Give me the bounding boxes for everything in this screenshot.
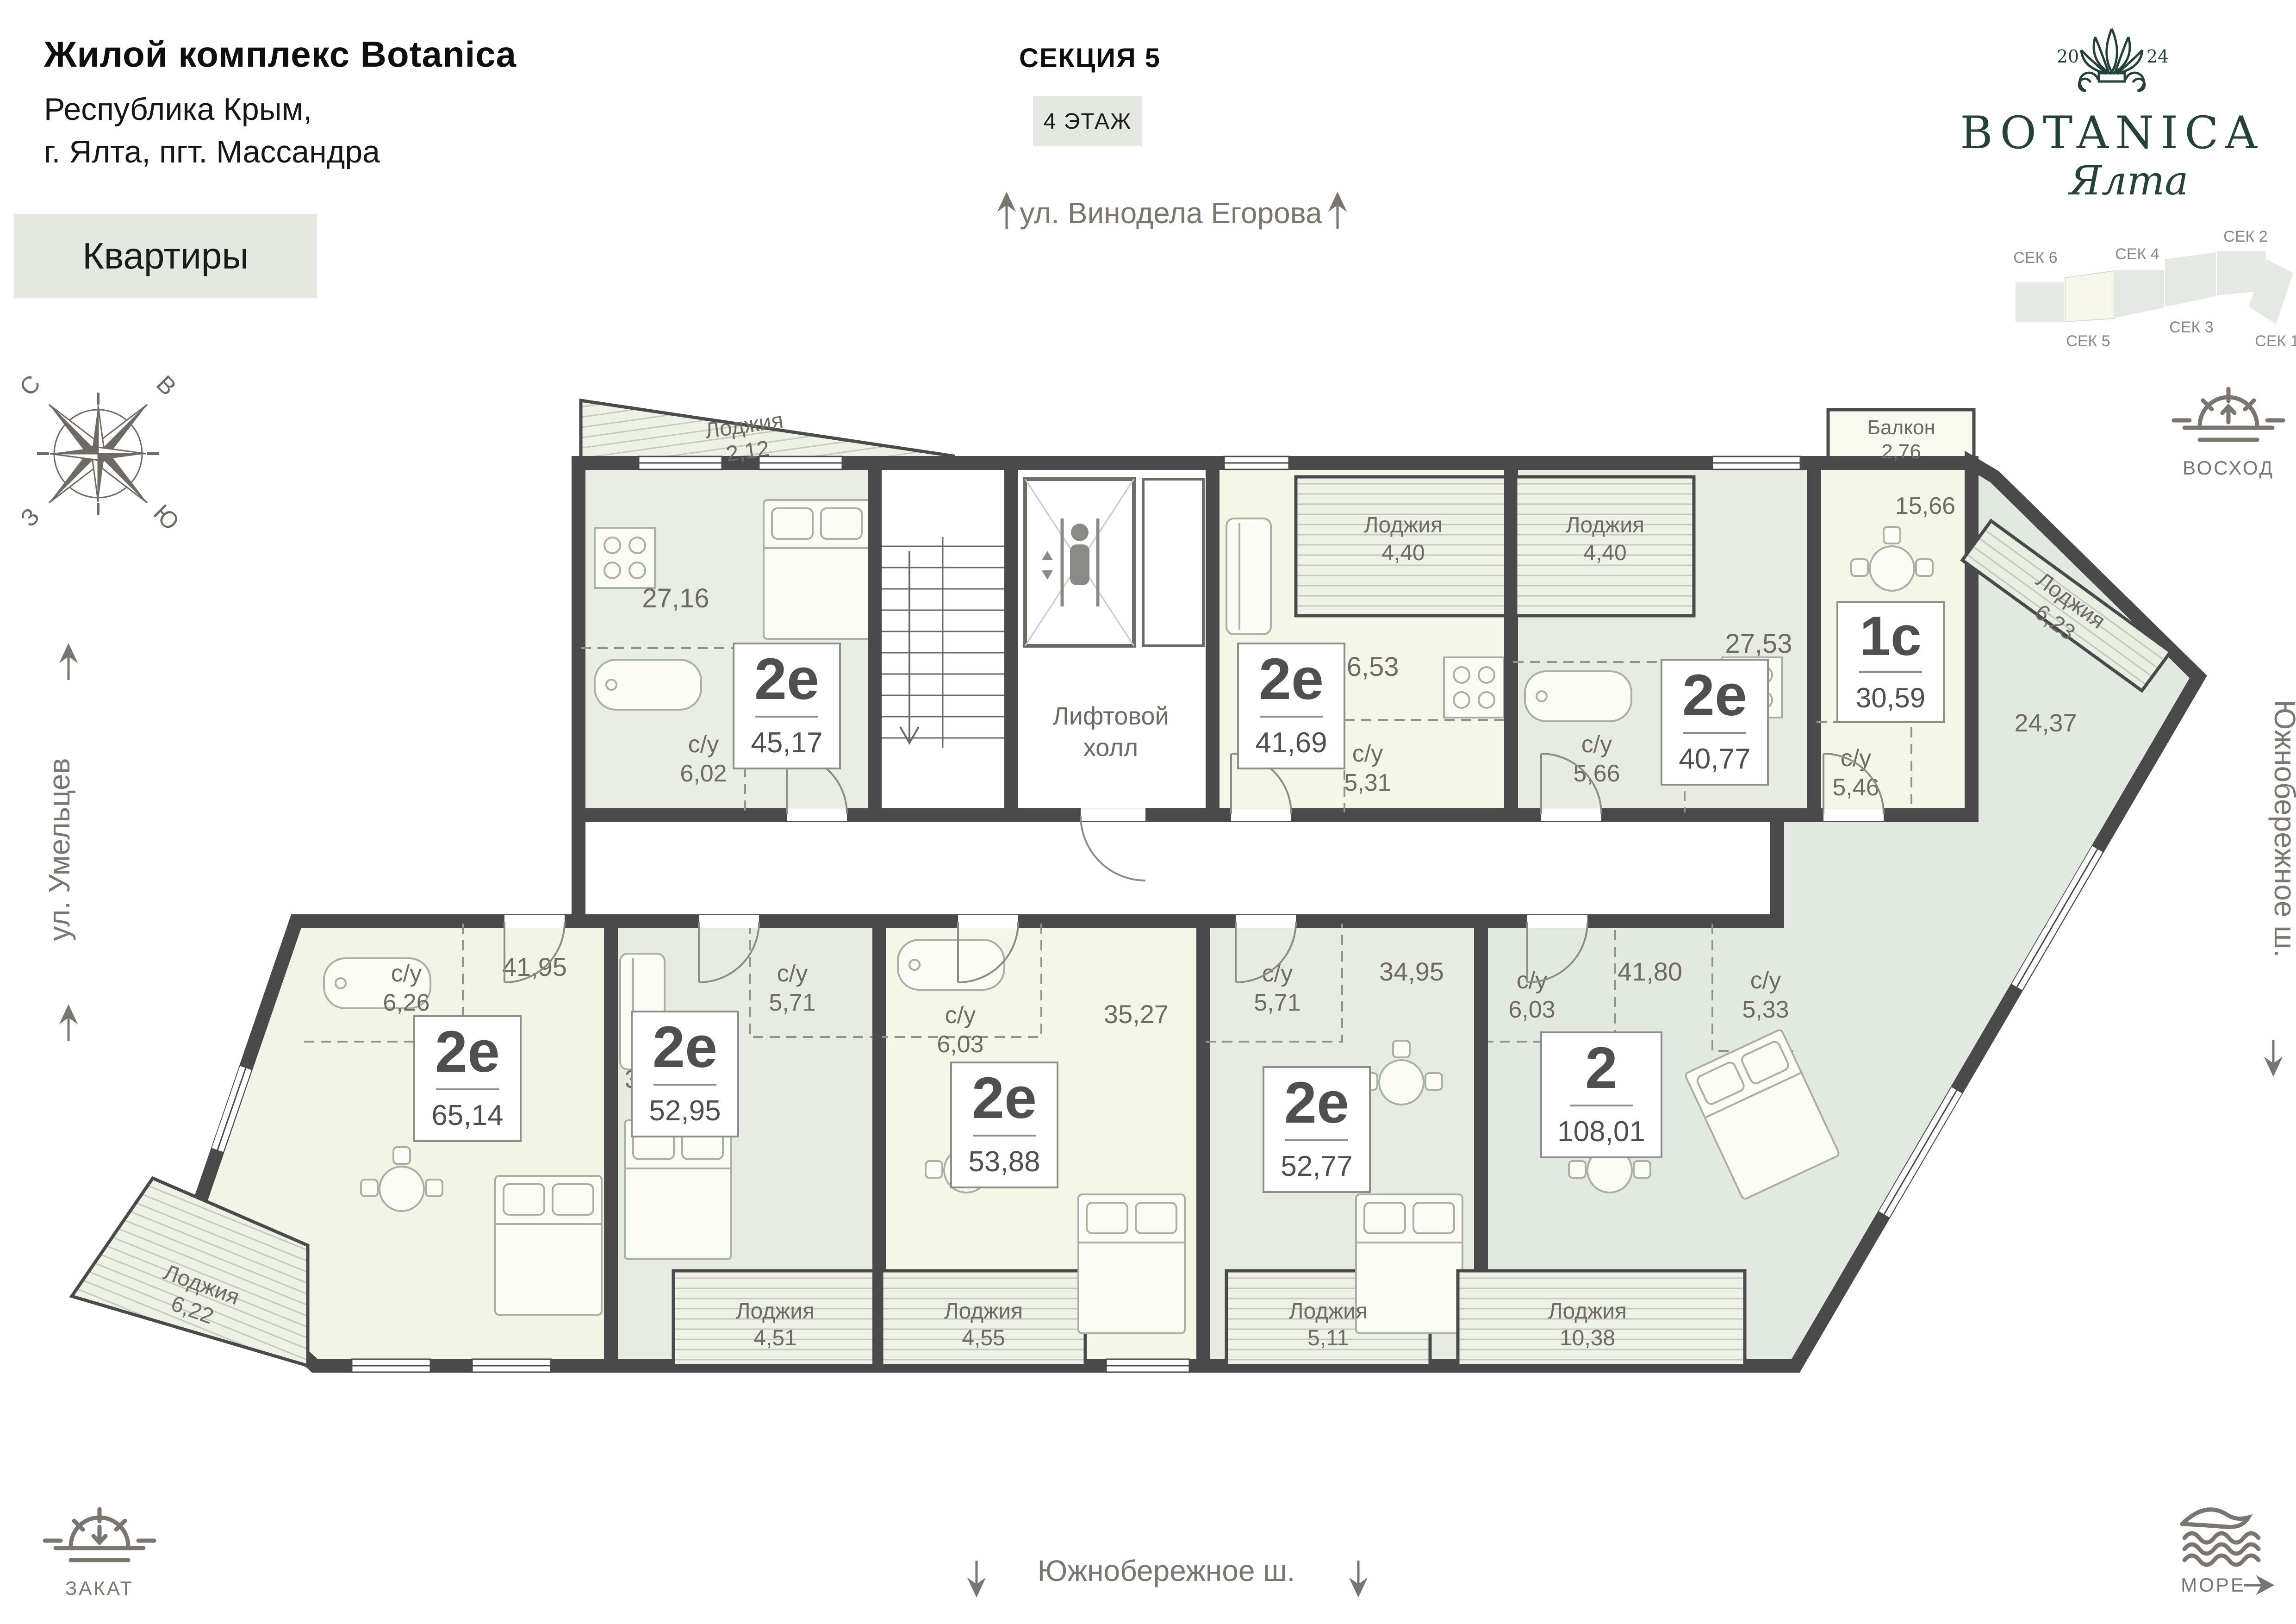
stove-icon: [595, 528, 655, 588]
svg-text:2е: 2е: [1682, 662, 1747, 728]
wc-label: с/у: [391, 960, 422, 987]
sea-corner: МОРЕ: [2181, 1510, 2271, 1596]
compass-south: Ю: [148, 500, 184, 536]
svg-text:2е: 2е: [653, 1014, 717, 1080]
room-area: 41,80: [1618, 957, 1682, 986]
bed-icon: [495, 1176, 602, 1315]
botanica-ornament-icon: [2079, 29, 2145, 91]
bathtub-icon: [898, 940, 1004, 990]
arrow-up-icon: [1331, 194, 1344, 229]
badge-2e-52-95: 2е 52,95: [632, 1012, 738, 1137]
section-map-label: СЕК 2: [2223, 228, 2267, 245]
svg-text:2е: 2е: [1259, 646, 1324, 712]
room-area: 15,66: [1895, 493, 1955, 519]
badge-1s-30-59: 1с 30,59: [1837, 602, 1944, 722]
wc-label: с/у: [777, 960, 808, 987]
logo-brand: BOTANICA: [1960, 107, 2264, 159]
loggia-label: Лоджия: [1548, 1299, 1627, 1324]
room-area: 41,95: [502, 952, 567, 981]
svg-text:1с: 1с: [1860, 605, 1921, 667]
compass-west: З: [15, 503, 44, 532]
wc-area: 6,03: [937, 1031, 983, 1058]
room-area: 34,95: [1379, 957, 1444, 986]
loggia-label: Лоджия: [736, 1299, 815, 1324]
compass-east: В: [151, 370, 181, 401]
loggia-label: Лоджия: [1566, 513, 1644, 537]
sea-label: МОРЕ: [2181, 1574, 2246, 1596]
street-bottom: Южнобережное ш.: [1038, 1554, 1295, 1587]
wc2-label: с/у: [1750, 967, 1781, 994]
wc-area: 5,66: [1573, 760, 1620, 787]
wc-area: 6,03: [1508, 996, 1555, 1023]
section-mini-map: СЕК 6 СЕК 4 СЕК 2 СЕК 5 СЕК 3 СЕК 1: [2013, 228, 2296, 350]
logo-city: Ялта: [2067, 158, 2188, 204]
sunset-label: ЗАКАТ: [65, 1577, 134, 1599]
svg-text:52,77: 52,77: [1281, 1150, 1352, 1182]
svg-text:2е: 2е: [1284, 1070, 1349, 1135]
loggia-label: Лоджия: [944, 1299, 1023, 1324]
street-right: Южнобережное ш.: [2268, 700, 2296, 958]
corridor: [579, 815, 1777, 921]
bed-icon: [764, 500, 870, 639]
sofa-icon: [1226, 518, 1271, 634]
wc-label: с/у: [1352, 740, 1383, 767]
balcony-label: Балкон: [1867, 416, 1935, 439]
balcony-area: 2,76: [1881, 440, 1921, 463]
logo-year-right: 24: [2147, 46, 2169, 67]
loggia-area: 4,55: [962, 1326, 1005, 1350]
arrow-up-icon: [62, 1007, 75, 1041]
section-block-5-active[interactable]: [2065, 271, 2114, 322]
badge-2e-65-14: 2е 65,14: [414, 1016, 521, 1141]
section-block-4[interactable]: [2115, 270, 2164, 318]
badge-2-108-01: 2 108,01: [1541, 1032, 1661, 1157]
room-area: 27,53: [1725, 629, 1792, 659]
sunset-icon: [45, 1509, 154, 1560]
svg-text:52,95: 52,95: [649, 1095, 721, 1127]
svg-text:53,88: 53,88: [968, 1146, 1040, 1178]
floorplan: Лоджия 2,12 27,16 с/у 6,02: [72, 400, 2198, 1372]
loggia-area: 4,51: [753, 1326, 796, 1350]
floorplan-svg: Лоджия 2,12 27,16 с/у 6,02: [0, 0, 2296, 1624]
svg-text:41,69: 41,69: [1255, 727, 1327, 759]
lift-hall-label-2: холл: [1083, 734, 1138, 762]
room-area: 35,27: [1104, 999, 1169, 1029]
svg-text:65,14: 65,14: [431, 1099, 503, 1131]
arrow-up-icon: [1000, 194, 1013, 229]
wc-area: 5,71: [1254, 989, 1300, 1016]
wc-area: 5,31: [1344, 769, 1391, 796]
floorplan-page: Жилой комплекс Botanica Республика Крым,…: [0, 0, 2296, 1624]
arrow-up-icon: [62, 646, 75, 680]
svg-text:40,77: 40,77: [1679, 743, 1750, 775]
apartment-2e-52-95[interactable]: 34,95 с/у 5,71 Лоджия 4,51: [611, 921, 879, 1366]
bathtub-icon: [595, 660, 701, 710]
bed-icon: [1356, 1194, 1462, 1333]
lift-hall: Лифтовой холл: [1011, 463, 1213, 815]
wc-label: с/у: [688, 731, 719, 758]
bed-icon: [625, 1120, 731, 1259]
badge-2e-41-69: 2е 41,69: [1238, 643, 1344, 768]
lift-hall-label-1: Лифтовой: [1052, 702, 1169, 730]
sea-arrow-icon: [2244, 1579, 2271, 1592]
sunrise-icon: [2174, 389, 2283, 440]
compass-north: С: [14, 370, 46, 401]
loggia-label: Лоджия: [1289, 1299, 1368, 1324]
svg-text:30,59: 30,59: [1856, 682, 1925, 713]
svg-text:2: 2: [1585, 1035, 1618, 1100]
svg-text:2е: 2е: [435, 1019, 500, 1084]
sea-waves-icon: [2182, 1510, 2259, 1565]
section-map-label: СЕК 5: [2066, 332, 2110, 350]
stove-icon: [1444, 657, 1504, 718]
logo: 20 24 BOTANICA Ялта: [1960, 29, 2264, 204]
badge-2e-45-17: 2е 45,17: [734, 643, 840, 768]
wc-area: 6,02: [680, 760, 727, 787]
street-left: ул. Умельцев: [43, 758, 76, 941]
compass-rose-icon: С В З Ю: [0, 356, 196, 552]
badge-2e-52-77: 2е 52,77: [1263, 1067, 1370, 1192]
loggia-area: 5,11: [1307, 1326, 1349, 1350]
section-map-label: СЕК 1: [2255, 332, 2296, 350]
bed-icon: [1078, 1194, 1185, 1333]
loggia-area: 10,38: [1560, 1326, 1615, 1350]
svg-text:108,01: 108,01: [1557, 1116, 1645, 1148]
street-top: ул. Винодела Егорова: [1020, 196, 1322, 230]
room2-area: 24,37: [2014, 709, 2077, 737]
section-map-label: СЕК 6: [2013, 249, 2057, 267]
stairwell: [875, 463, 1011, 815]
arrow-down-icon: [1352, 1561, 1365, 1595]
loggia-area: 4,40: [1583, 541, 1626, 565]
wc-area: 6,26: [383, 989, 429, 1016]
badge-2e-40-77: 2е 40,77: [1661, 660, 1768, 785]
section-map-label: СЕК 4: [2115, 245, 2159, 263]
section-block-3[interactable]: [2165, 252, 2216, 307]
wc-label: с/у: [1581, 731, 1612, 758]
logo-year-left: 20: [2057, 46, 2079, 67]
sunrise-corner: ВОСХОД: [2174, 389, 2283, 479]
wc2-area: 5,33: [1742, 996, 1789, 1023]
bathtub-icon: [1525, 671, 1631, 721]
wc-label: с/у: [945, 1002, 976, 1029]
section-block-6[interactable]: [2016, 282, 2064, 322]
badge-2e-53-88: 2е 53,88: [951, 1062, 1058, 1187]
room-area: 27,16: [642, 583, 709, 613]
arrow-down-icon: [2267, 1040, 2280, 1074]
svg-text:2е: 2е: [972, 1065, 1037, 1131]
section-map-label: СЕК 3: [2169, 319, 2213, 336]
wc-area: 5,71: [769, 989, 815, 1016]
svg-text:2е: 2е: [754, 646, 819, 712]
sunset-corner: ЗАКАТ: [45, 1509, 154, 1599]
svg-text:45,17: 45,17: [751, 727, 822, 759]
arrow-down-icon: [970, 1561, 983, 1595]
apartment-2e-65-14[interactable]: Лоджия 6,22 41,95 с/у 6,26: [72, 921, 611, 1366]
loggia-area: 4,40: [1381, 541, 1425, 565]
loggia-label: Лоджия: [1364, 513, 1443, 537]
sunrise-label: ВОСХОД: [2183, 457, 2274, 479]
